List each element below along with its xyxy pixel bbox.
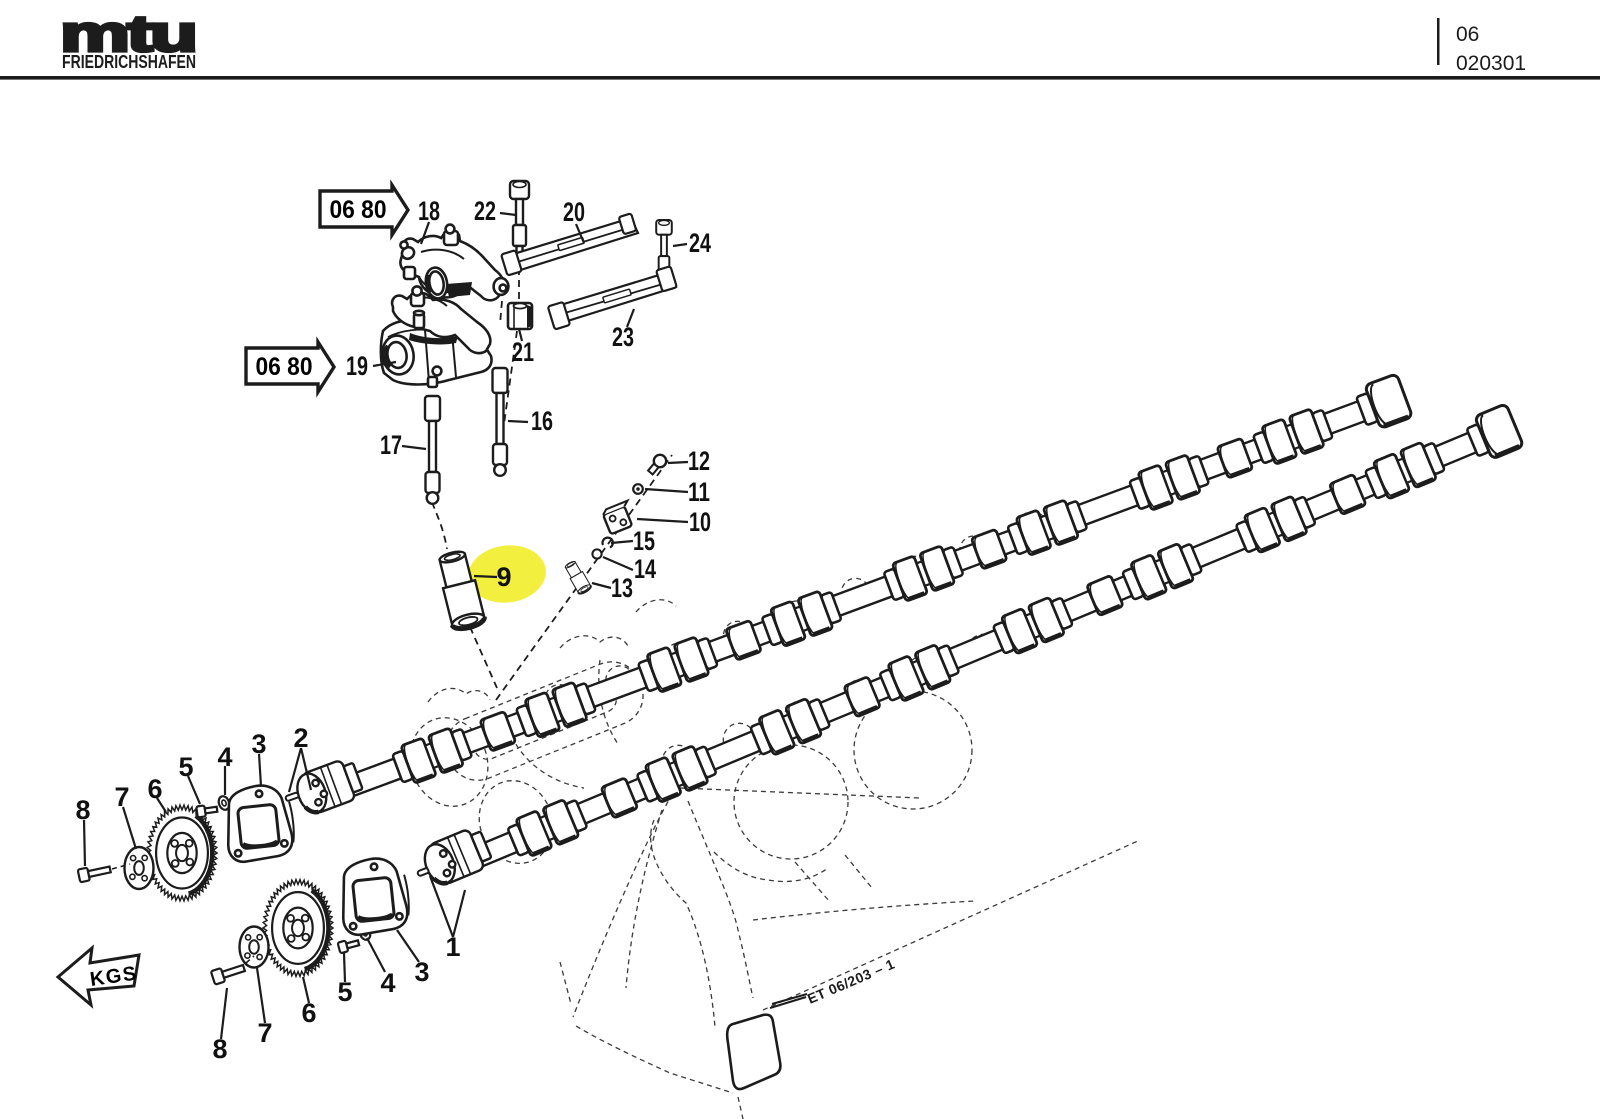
svg-text:10: 10 <box>689 507 711 537</box>
svg-text:14: 14 <box>634 554 656 584</box>
svg-text:15: 15 <box>633 526 655 556</box>
svg-text:06: 06 <box>1456 23 1479 46</box>
svg-text:FRIEDRICHSHAFEN: FRIEDRICHSHAFEN <box>62 52 196 72</box>
svg-text:4: 4 <box>380 968 395 998</box>
svg-text:24: 24 <box>689 228 711 258</box>
svg-text:5: 5 <box>178 752 193 782</box>
svg-text:6: 6 <box>147 774 162 804</box>
svg-text:12: 12 <box>688 446 710 476</box>
svg-text:06 80: 06 80 <box>330 196 387 224</box>
svg-text:7: 7 <box>114 782 129 812</box>
svg-text:23: 23 <box>612 322 634 352</box>
svg-text:16: 16 <box>531 406 553 436</box>
svg-text:3: 3 <box>414 957 429 987</box>
svg-text:11: 11 <box>688 477 710 507</box>
svg-text:21: 21 <box>512 337 534 367</box>
svg-text:13: 13 <box>611 573 633 603</box>
svg-text:20: 20 <box>563 197 585 227</box>
svg-text:19: 19 <box>346 351 368 381</box>
svg-text:9: 9 <box>496 562 511 592</box>
svg-text:18: 18 <box>418 196 440 226</box>
svg-text:17: 17 <box>380 430 402 460</box>
svg-text:22: 22 <box>474 196 496 226</box>
svg-text:06 80: 06 80 <box>256 353 313 381</box>
svg-text:020301: 020301 <box>1456 52 1526 75</box>
